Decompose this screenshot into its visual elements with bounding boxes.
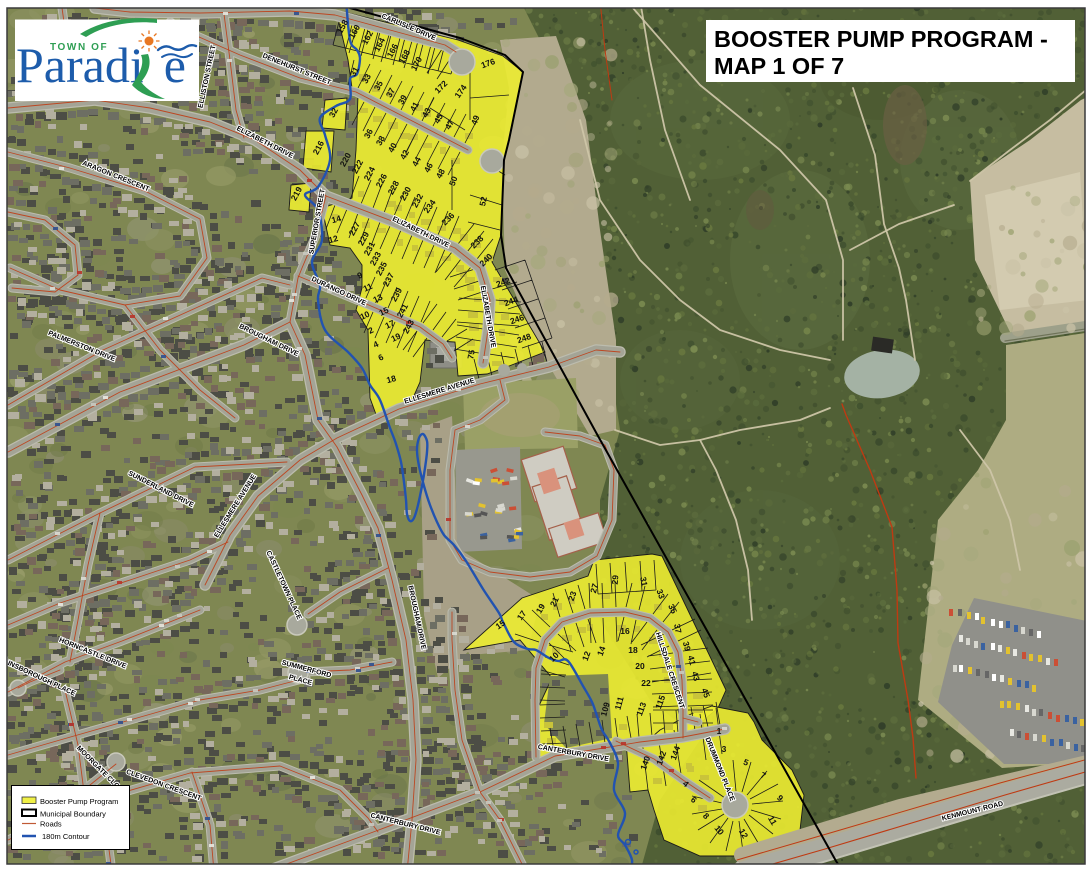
svg-text:75: 75: [465, 349, 477, 360]
svg-text:MAP 1 OF 7: MAP 1 OF 7: [714, 53, 844, 79]
svg-text:18: 18: [628, 645, 638, 655]
svg-text:31: 31: [638, 576, 650, 587]
svg-text:22: 22: [641, 678, 651, 688]
svg-text:180m Contour: 180m Contour: [42, 832, 90, 841]
svg-text:37: 37: [672, 623, 684, 634]
svg-text:Booster Pump Program: Booster Pump Program: [40, 797, 118, 806]
svg-text:16: 16: [620, 626, 630, 636]
svg-text:29: 29: [610, 574, 621, 585]
svg-text:1: 1: [717, 726, 722, 736]
svg-text:Roads: Roads: [40, 820, 62, 829]
svg-text:BOOSTER PUMP PROGRAM -: BOOSTER PUMP PROGRAM -: [714, 26, 1048, 52]
svg-text:Municipal Boundary: Municipal Boundary: [40, 810, 106, 819]
svg-text:20: 20: [635, 661, 645, 671]
svg-text:3: 3: [722, 744, 727, 754]
